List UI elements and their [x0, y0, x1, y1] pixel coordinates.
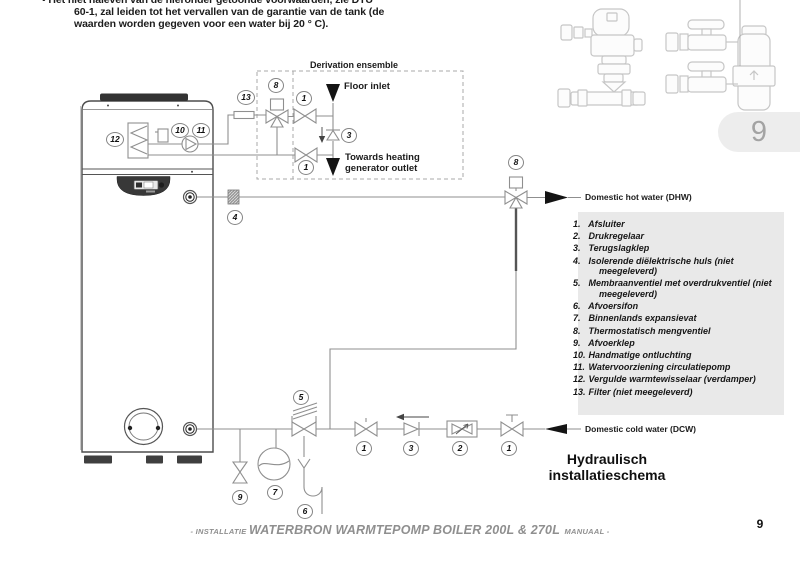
derivation-ensemble-label: Derivation ensemble	[310, 60, 398, 70]
warning-line-2: 60-1, zal leiden tot het vervallen van d…	[74, 6, 384, 18]
circled-marker: 9	[232, 490, 248, 505]
flow-arrows	[326, 84, 568, 434]
heating-outlet-arrow	[326, 158, 340, 176]
circled-marker: 1	[356, 441, 372, 456]
towards-heating-label-1: Towards heating	[345, 152, 420, 163]
legend-item: 11. Watervoorziening circulatiepomp	[586, 362, 778, 373]
dcw-arrow	[545, 424, 567, 434]
circled-marker: 12	[106, 132, 124, 147]
circled-marker: 4	[227, 210, 243, 225]
circled-marker: 13	[237, 90, 255, 105]
footer: - INSTALLATIE WATERBRON WARMTEPOMP BOILE…	[0, 521, 800, 539]
circled-marker: 7	[267, 485, 283, 500]
circled-marker: 8	[508, 155, 524, 170]
product-illustration-derivation-kit	[666, 20, 775, 110]
dhw-label: Domestic hot water (DHW)	[585, 192, 692, 202]
legend-item: 7. Binnenlands expansievat	[586, 313, 778, 324]
manual-page: • Het niet naleven van de hieronder geto…	[0, 0, 800, 562]
circled-marker: 5	[293, 390, 309, 405]
legend-item: 2. Drukregelaar	[586, 231, 778, 242]
legend-box: 1. Afsluiter 2. Drukregelaar 3. Terugsla…	[578, 212, 784, 415]
legend-item: 8. Thermostatisch mengventiel	[586, 326, 778, 337]
circled-marker: 6	[297, 504, 313, 519]
circled-marker: 1	[298, 160, 314, 175]
dhw-arrow	[545, 191, 568, 204]
legend-item: 10. Handmatige ontluchting	[586, 350, 778, 361]
dcw-label: Domestic cold water (DCW)	[585, 424, 696, 434]
circled-marker: 8	[268, 78, 284, 93]
legend-item: 1. Afsluiter	[586, 219, 778, 230]
legend-list: 1. Afsluiter 2. Drukregelaar 3. Terugsla…	[586, 219, 778, 397]
towards-heating-label-2: generator outlet	[345, 163, 417, 174]
page-number: 9	[748, 517, 772, 531]
warning-line-3: waarden worden gegeven voor een water bi…	[74, 18, 328, 30]
floor-inlet-label: Floor inlet	[344, 81, 390, 92]
circled-marker: 10	[171, 123, 189, 138]
tank-top-cap	[100, 94, 188, 102]
circled-marker: 2	[452, 441, 468, 456]
circled-marker: 1	[296, 91, 312, 106]
legend-item: 12. Vergulde warmtewisselaar (verdamper)	[586, 374, 778, 385]
legend-item: 4. Isolerende diëlektrische huls (niet m…	[586, 256, 778, 277]
schema-title: Hydraulisch installatieschema	[507, 452, 707, 483]
chapter-tab: 9	[718, 112, 800, 152]
circled-marker: 11	[192, 123, 210, 138]
legend-item: 9. Afvoerklep	[586, 338, 778, 349]
legend-item: 6. Afvoersifon	[586, 301, 778, 312]
legend-item: 13. Filter (niet meegeleverd)	[586, 387, 778, 398]
circled-marker: 3	[341, 128, 357, 143]
product-illustration-mixing-valve	[558, 9, 645, 107]
floor-inlet-arrow	[326, 84, 340, 102]
legend-item: 3. Terugslagklep	[586, 243, 778, 254]
legend-item: 5. Membraanventiel met overdrukventiel (…	[586, 278, 778, 299]
circled-marker: 3	[403, 441, 419, 456]
